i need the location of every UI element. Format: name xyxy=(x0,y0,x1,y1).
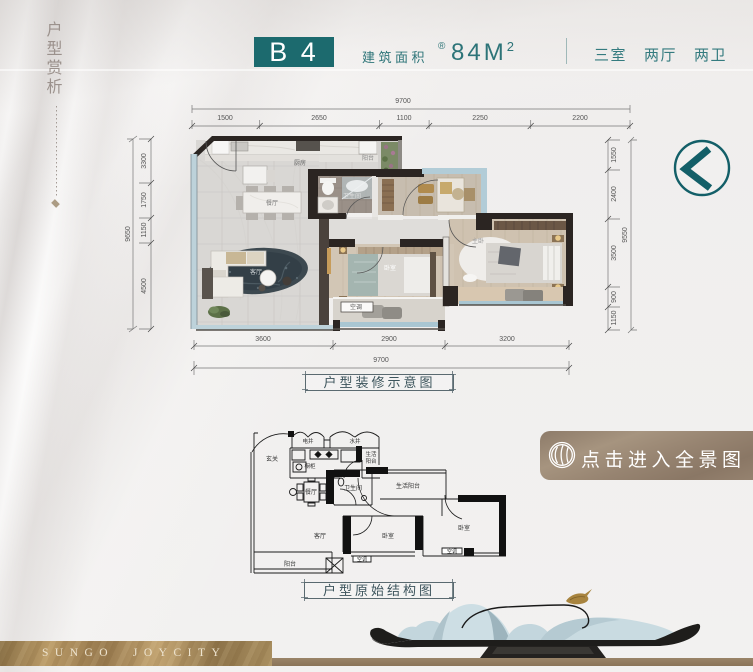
svg-text:9650: 9650 xyxy=(125,226,132,242)
svg-text:3200: 3200 xyxy=(499,336,515,343)
svg-text:1750: 1750 xyxy=(141,192,148,208)
svg-text:9700: 9700 xyxy=(373,357,389,364)
svg-text:卧室: 卧室 xyxy=(458,524,470,532)
svg-text:2400: 2400 xyxy=(611,186,618,202)
svg-text:1150: 1150 xyxy=(611,310,618,325)
svg-text:卧室: 卧室 xyxy=(382,532,394,540)
svg-text:2900: 2900 xyxy=(381,336,397,343)
svg-text:生活: 生活 xyxy=(365,450,377,458)
svg-text:1550: 1550 xyxy=(611,147,618,163)
svg-text:9550: 9550 xyxy=(622,227,629,243)
svg-text:3500: 3500 xyxy=(611,245,618,261)
svg-text:空调: 空调 xyxy=(447,548,457,555)
svg-text:1150: 1150 xyxy=(141,222,148,237)
svg-text:9700: 9700 xyxy=(395,98,411,105)
svg-text:1500: 1500 xyxy=(217,115,233,122)
svg-text:生活阳台: 生活阳台 xyxy=(396,482,420,490)
svg-text:餐厅: 餐厅 xyxy=(266,199,278,207)
svg-text:3600: 3600 xyxy=(255,336,271,343)
svg-text:1100: 1100 xyxy=(396,115,411,122)
svg-text:阳台: 阳台 xyxy=(365,457,377,465)
svg-text:空调: 空调 xyxy=(357,556,367,563)
svg-text:电井: 电井 xyxy=(302,437,314,445)
svg-text:客厅: 客厅 xyxy=(314,532,326,540)
svg-text:阳台: 阳台 xyxy=(362,154,374,162)
svg-text:主卧: 主卧 xyxy=(472,237,484,245)
svg-text:卫生间: 卫生间 xyxy=(344,484,362,492)
svg-text:厨房: 厨房 xyxy=(294,159,306,167)
svg-text:2650: 2650 xyxy=(311,115,327,122)
svg-text:2200: 2200 xyxy=(572,115,588,122)
svg-text:橱柜: 橱柜 xyxy=(304,462,316,470)
svg-text:水井: 水井 xyxy=(349,437,361,445)
svg-text:玄关: 玄关 xyxy=(266,455,278,463)
svg-text:3300: 3300 xyxy=(141,153,148,169)
svg-text:客厅: 客厅 xyxy=(250,268,262,276)
svg-text:2250: 2250 xyxy=(472,115,488,122)
svg-text:卫生间: 卫生间 xyxy=(343,192,361,200)
svg-text:卧室: 卧室 xyxy=(384,264,396,272)
svg-text:900: 900 xyxy=(611,291,618,303)
svg-text:阳台: 阳台 xyxy=(284,560,296,568)
svg-text:空调: 空调 xyxy=(350,303,362,311)
svg-text:4500: 4500 xyxy=(141,278,148,294)
svg-text:餐厅: 餐厅 xyxy=(305,488,317,496)
